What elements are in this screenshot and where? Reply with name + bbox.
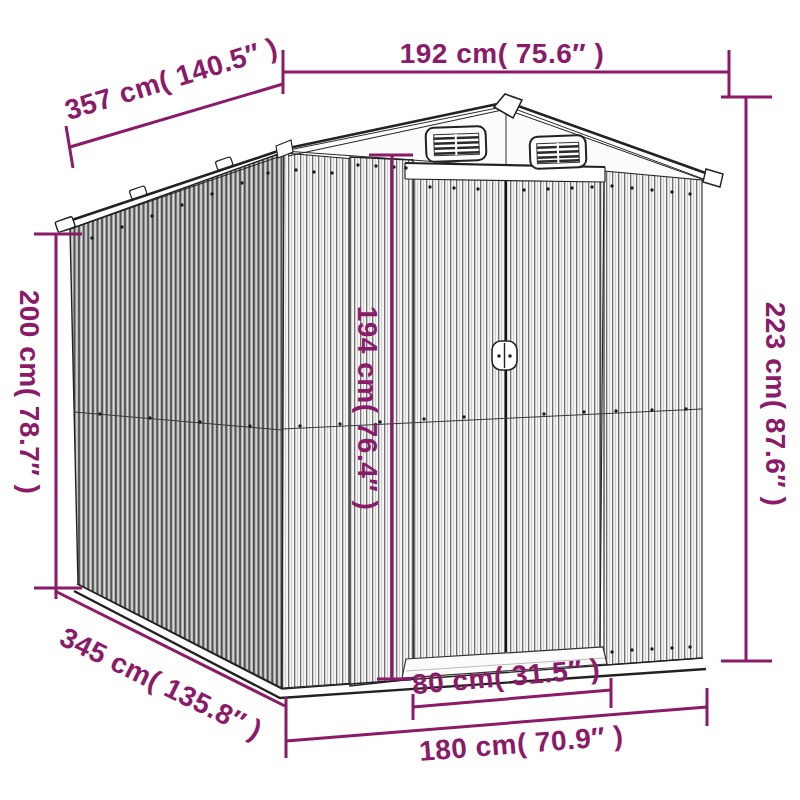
product-image: 192 cm( 75.6″ ) 357 cm( 140.5″ ) 200 cm(… (0, 0, 800, 800)
side-wall (70, 152, 284, 688)
roof-eave-tip-right (703, 169, 723, 187)
gable-vent-left (425, 126, 486, 162)
dimension-diagram-svg: 192 cm( 75.6″ ) 357 cm( 140.5″ ) 200 cm(… (0, 0, 800, 800)
shed-illustration (55, 94, 723, 698)
dim-label-door-height: 194 cm( 76.4″ ) (352, 306, 383, 511)
dim-label-roof-depth: 357 cm( 140.5″ ) (61, 32, 281, 126)
dim-label-wall-height: 200 cm( 78.7″ ) (14, 290, 45, 495)
front-wall-right (604, 171, 702, 665)
dim-label-front-width: 192 cm( 75.6″ ) (400, 38, 605, 69)
dim-label-total-height: 223 cm( 87.6″ ) (760, 302, 791, 507)
door-handle (492, 341, 517, 370)
gable-vent-right (529, 135, 586, 169)
